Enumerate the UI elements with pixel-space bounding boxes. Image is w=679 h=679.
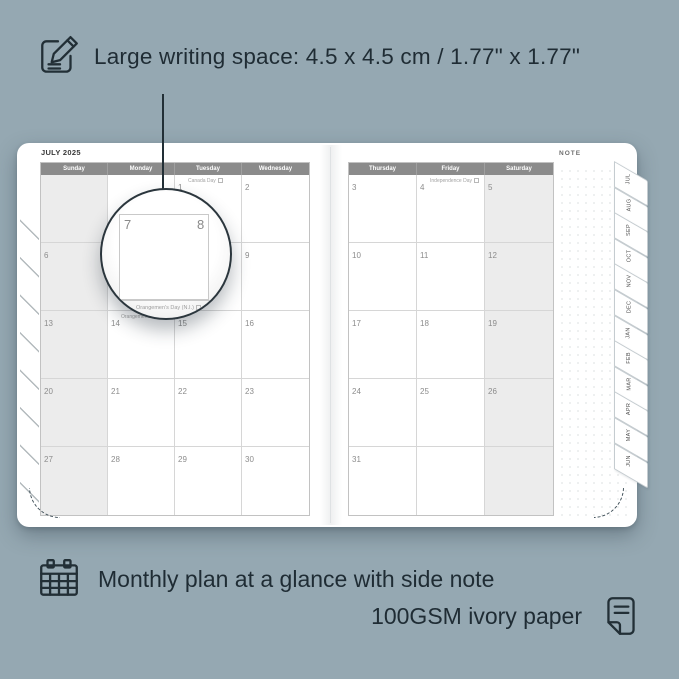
page-gutter-shade [320,145,342,525]
calendar-cell [485,447,553,515]
day-header: Wednesday [242,163,309,175]
calendar-cell: 21 [108,379,175,447]
date-number: 21 [111,387,120,396]
date-number: 23 [245,387,254,396]
month-tab-jul: JUL [614,161,648,187]
calendar-cell: 3 [349,175,417,243]
date-number: 20 [44,387,53,396]
calendar-cell: 19 [485,311,553,379]
holiday-label: Independence Day [430,178,479,184]
magnifier-circle: 7 8 4 Orangemen's Day (N.I.) [100,188,232,320]
date-number: 22 [178,387,187,396]
calendar-cell: 2 [242,175,309,243]
month-tab-label: NOV [626,275,632,288]
month-tab-apr: APR [614,391,648,417]
month-tab-label: DEC [626,301,632,314]
magnified-grid-line [104,300,232,301]
calendar-cell: 15 [175,311,242,379]
date-number: 15 [178,319,187,328]
calendar-cell: 22 [175,379,242,447]
pencil-note-icon [36,34,82,80]
magnified-date-below: 4 [121,302,126,312]
corner-arc-bottom-left [20,488,60,528]
month-tab-sep: SEP [614,212,648,238]
magnified-holiday-label: Orangemen's Day (N.I.) [136,305,201,311]
feature-top-text: Large writing space: 4.5 x 4.5 cm / 1.77… [94,44,580,70]
date-number: 11 [420,251,428,260]
calendar-cell: 16 [242,311,309,379]
calendar-cell: 18 [417,311,485,379]
calendar-cell: 14Orangemen's Day (N.I.) [108,311,175,379]
month-tab-label: MAY [626,429,632,441]
date-number: 26 [488,387,497,396]
corner-arc-bottom-right [594,488,634,528]
calendar-cell: 31 [349,447,417,515]
magnified-writing-space [119,214,209,300]
calendar-cell: 28 [108,447,175,515]
month-tab-aug: AUG [614,187,648,213]
month-tab-rail: JULAUGSEPOCTNOVDECJANFEBMARAPRMAYJUN [614,161,658,481]
month-tab-nov: NOV [614,263,648,289]
page-gutter-line [330,147,331,523]
calendar-cell: 12 [485,243,553,311]
day-header: Sunday [41,163,108,175]
month-tab-mar: MAR [614,366,648,392]
calendar-cell: 11 [417,243,485,311]
magnified-date-8: 8 [197,217,204,232]
month-tab-jun: JUN [614,443,648,469]
holiday-label: Canada Day [188,178,223,184]
date-number: 29 [178,455,187,464]
date-number: 10 [352,251,361,260]
month-tab-label: JUL [625,174,631,185]
paper-icon [598,593,644,639]
day-header: Friday [417,163,485,175]
month-tab-oct: OCT [614,238,648,264]
note-label: NOTE [559,150,581,157]
month-tab-dec: DEC [614,289,648,315]
feature-bottom-primary-text: Monthly plan at a glance with side note [98,566,494,593]
date-number: 30 [245,455,254,464]
date-number: 25 [420,387,429,396]
date-number: 12 [488,251,497,260]
calendar-cell: 10 [349,243,417,311]
day-header: Tuesday [175,163,242,175]
feature-bottom-secondary-text: 100GSM ivory paper [371,603,582,630]
calendar-cell: 20 [41,379,108,447]
month-tab-label: JUN [626,455,632,467]
calendar-cell: 13 [41,311,108,379]
feature-large-writing-space: Large writing space: 4.5 x 4.5 cm / 1.77… [36,34,580,80]
date-number: 4 [420,183,424,192]
calendar-cell: 30 [242,447,309,515]
day-header: Saturday [485,163,553,175]
calendar-cell: 17 [349,311,417,379]
day-header: Monday [108,163,175,175]
month-tab-feb: FEB [614,340,648,366]
month-title: JULY 2025 [41,148,81,157]
date-number: 3 [352,183,356,192]
callout-connector-line [162,94,164,190]
page-edge-hatch [20,205,39,519]
date-number: 5 [488,183,492,192]
date-number: 31 [352,455,361,464]
calendar-cell [41,175,108,243]
month-tab-label: SEP [626,224,632,236]
month-tab-may: MAY [614,417,648,443]
calendar-cell: 5 [485,175,553,243]
calendar-right-page: ThursdayFridaySaturday34Independence Day… [348,162,554,516]
calendar-cell: 29 [175,447,242,515]
month-tab-jan: JAN [614,315,648,341]
date-number: 17 [352,319,361,328]
date-number: 18 [420,319,429,328]
month-tab-label: MAR [627,377,633,390]
date-number: 16 [245,319,254,328]
date-number: 28 [111,455,120,464]
date-number: 14 [111,319,120,328]
calendar-cell: 4Independence Day [417,175,485,243]
calendar-cell: 23 [242,379,309,447]
date-number: 13 [44,319,53,328]
month-tab-label: FEB [626,352,632,364]
calendar-cell: 6 [41,243,108,311]
date-number: 6 [44,251,48,260]
calendar-cell: 26 [485,379,553,447]
month-tab-label: APR [626,403,632,415]
day-header: Thursday [349,163,417,175]
planner-spread: JULY 2025 SundayMondayTuesdayWednesday1C… [17,143,637,527]
month-tab-label: OCT [626,250,632,263]
calendar-cell: 24 [349,379,417,447]
feature-monthly-plan: Monthly plan at a glance with side note [36,556,494,602]
calendar-cell: 25 [417,379,485,447]
product-infographic: Large writing space: 4.5 x 4.5 cm / 1.77… [0,0,679,679]
month-tab-label: AUG [626,198,632,211]
calendar-grid-icon [36,556,82,602]
date-number: 9 [245,251,249,260]
calendar-cell: 9 [242,243,309,311]
calendar-cell [417,447,485,515]
date-number: 19 [488,319,497,328]
month-tab-label: JAN [626,327,632,338]
date-number: 24 [352,387,361,396]
magnified-date-7: 7 [124,217,131,232]
date-number: 2 [245,183,249,192]
date-number: 27 [44,455,53,464]
